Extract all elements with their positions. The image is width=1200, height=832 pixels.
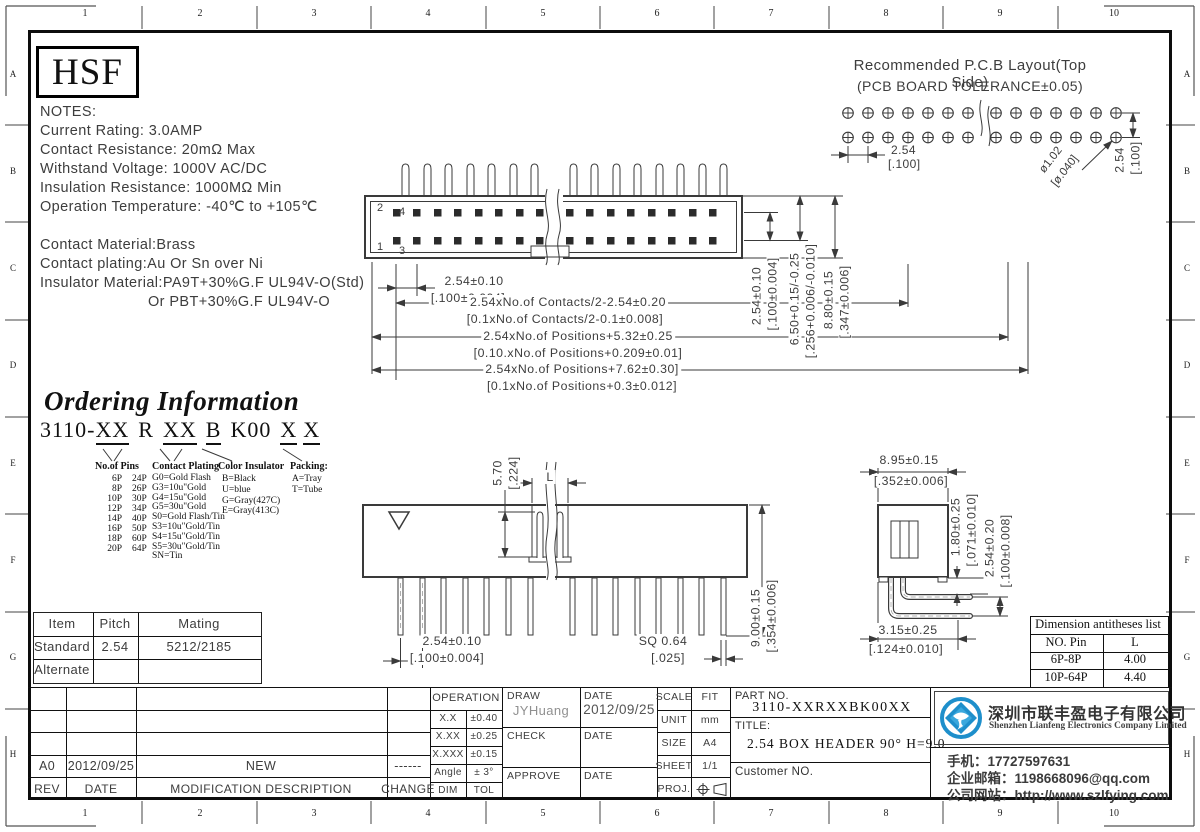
unit-label: UNIT [661, 714, 687, 726]
ruler-right-b: B [1180, 166, 1194, 176]
dim-positions2-inch: [0.1xNo.of Positions+0.3±0.012] [485, 379, 679, 393]
ruler-bottom-2: 2 [188, 808, 212, 819]
rev-header-rev: REV [34, 782, 60, 796]
pins-list: 6P24P 8P26P 10P30P 12P34P 14P40P 16P50P … [100, 474, 147, 554]
notes-title: NOTES: [40, 104, 96, 120]
ruler-left-f: F [6, 555, 20, 565]
dim-row-pitch: 2.54±0.10 [751, 265, 764, 327]
ruler-bottom-4: 4 [416, 808, 440, 819]
dim-table-header-pin: NO. Pin [1046, 635, 1087, 650]
company-name-en: Shenzhen Lianfeng Electronics Company Li… [989, 721, 1187, 731]
dim-body-650-inch: [.256+0.006/-0.010] [805, 242, 818, 361]
rev-change: ------ [394, 759, 421, 773]
dim-table-row-l: 4.00 [1124, 652, 1146, 667]
color-opt: G=Gray(427C) [222, 496, 280, 507]
drawing-title: 2.54 BOX HEADER 90° H=9.0 [747, 736, 946, 752]
pins-opt: 26P [132, 484, 147, 494]
ruler-top-1: 1 [73, 8, 97, 19]
ruler-bottom-7: 7 [759, 808, 783, 819]
pin-label-2: 2 [377, 202, 384, 214]
dim-front-pitch: 2.54±0.10 [420, 634, 483, 648]
dim-positions1-inch: [0.10.xNo.of Positions+0.209±0.01] [472, 346, 685, 360]
tol-label: X.XX [436, 731, 460, 742]
pins-opt: 6P [100, 474, 122, 484]
rev-date: 2012/09/25 [68, 759, 135, 773]
ruler-left-a: A [6, 69, 20, 79]
ruler-left-h: H [6, 749, 20, 759]
mating-pitch-value: 2.54 [102, 639, 129, 654]
title-label: TITLE: [735, 720, 770, 732]
plating-header: Contact Plating [152, 461, 219, 472]
sheet-label: SHEET [655, 760, 692, 772]
rev-description: NEW [246, 759, 276, 773]
dim-table-row-l: 4.40 [1124, 670, 1146, 685]
code-plating: XX [163, 417, 197, 445]
note-line: Contact Resistance: 20mΩ Max [40, 142, 255, 158]
pins-opt: 10P [100, 494, 122, 504]
pin-label-1: 1 [377, 241, 384, 253]
ruler-right-c: C [1180, 263, 1194, 273]
ruler-bottom-6: 6 [645, 808, 669, 819]
rev-id: A0 [39, 759, 55, 773]
ruler-bottom-3: 3 [302, 808, 326, 819]
rev-header-date: DATE [85, 782, 118, 796]
size-label: SIZE [662, 737, 687, 749]
dim-front-pitch-inch: [.100±0.004] [408, 651, 486, 665]
tol-label: Angle [434, 767, 462, 778]
plating-list: G0=Gold Flash G3=10u"Gold G4=15u"Gold G5… [152, 474, 225, 562]
dim-height-900-inch: [.354±0.006] [766, 577, 779, 654]
ruler-top-6: 6 [645, 8, 669, 19]
sheet-value: 1/1 [702, 760, 718, 772]
mating-header-mating: Mating [178, 616, 219, 631]
dim-tail-315-inch: [.124±0.010] [867, 642, 945, 656]
code-pack: K00 [230, 417, 271, 442]
tol-value: ±0.15 [471, 749, 498, 760]
dim-contacts: 2.54xNo.of Contacts/2-2.54±0.20 [468, 295, 668, 309]
code-x2: X [303, 417, 320, 445]
pins-opt: 30P [132, 494, 147, 504]
ruler-bottom-5: 5 [531, 808, 555, 819]
color-list: B=Black U=blue G=Gray(427C) E=Gray(413C) [222, 474, 280, 517]
dim-table-row-pin: 10P-64P [1044, 670, 1087, 685]
tol-value: ± 3° [474, 767, 493, 778]
packing-opt: A=Tray [292, 474, 322, 485]
drawing-sheet: 1 2 3 4 5 6 7 8 9 10 1 2 3 4 5 6 7 8 9 1… [0, 0, 1200, 832]
mating-value: 5212/2185 [166, 639, 231, 654]
code-color: B [206, 417, 222, 445]
color-header: Color Insulator [218, 461, 284, 472]
color-opt: U=blue [222, 485, 280, 496]
dim-table-header-l: L [1131, 635, 1139, 650]
ruler-bottom-1: 1 [73, 808, 97, 819]
part-number: 3110-XXRXXBK00XX [752, 700, 912, 716]
draw-name: JYHuang [513, 703, 569, 718]
ruler-bottom-8: 8 [874, 808, 898, 819]
mating-alternate: Alternate [34, 662, 90, 677]
dim-row-pitch-inch: [.100±0.004] [767, 255, 780, 332]
ruler-bottom-9: 9 [988, 808, 1012, 819]
ruler-left-b: B [6, 166, 20, 176]
rev-header-change: CHANGE [381, 782, 435, 796]
dim-l: L [544, 470, 555, 484]
ruler-right-d: D [1180, 360, 1194, 370]
dim-pitch: 2.54±0.10 [442, 274, 505, 288]
customer-no-label: Customer NO. [735, 766, 813, 778]
pin-label-4: 4 [399, 206, 406, 218]
dim-table-row-pin: 6P-8P [1051, 652, 1082, 667]
check-date-label: DATE [584, 730, 613, 742]
draw-date-value: 2012/09/25 [583, 702, 655, 717]
hsf-logo-text: HSF [52, 51, 123, 94]
material-line: Or PBT+30%G.F UL94V-O [148, 294, 330, 310]
mating-header-pitch: Pitch [100, 616, 131, 631]
dim-width-895-inch: [.352±0.006] [872, 474, 950, 488]
note-line: Insulation Resistance: 1000MΩ Min [40, 180, 282, 196]
size-value: A4 [703, 737, 717, 749]
note-line: Operation Temperature: -40℃ to +105℃ [40, 199, 318, 215]
tol-value: TOL [474, 785, 494, 796]
packing-opt: T=Tube [292, 485, 322, 496]
dim-sq: SQ 0.64 [637, 634, 690, 648]
hsf-logo: HSF [36, 46, 139, 98]
ruler-top-10: 10 [1102, 8, 1126, 19]
pins-opt: 12P [100, 504, 122, 514]
packing-list: A=Tray T=Tube [292, 474, 322, 496]
dim-254-inch: [.100±0.008] [1000, 512, 1013, 589]
scale-label: SCALE [656, 691, 692, 703]
dim-body-880: 8.80±0.15 [823, 269, 836, 331]
ruler-top-4: 4 [416, 8, 440, 19]
draw-date-label: DATE [584, 690, 613, 702]
dim-body-650: 6.50+0.15/-0.25 [789, 251, 802, 348]
ordering-title: Ordering Information [44, 386, 299, 417]
pins-opt: 20P [100, 544, 122, 554]
mating-header-item: Item [49, 616, 76, 631]
tol-value: ±0.40 [471, 713, 498, 724]
dim-contacts-inch: [0.1xNo.of Contacts/2-0.1±0.008] [465, 312, 665, 326]
rev-header-description: MODIFICATION DESCRIPTION [170, 782, 351, 796]
operation-title: OPERATION [432, 692, 500, 704]
color-opt: B=Black [222, 474, 280, 485]
code-x1: X [280, 417, 297, 445]
dim-body-880-inch: [.347±0.006] [839, 263, 852, 340]
packing-header: Packing: [290, 461, 328, 472]
ruler-left-e: E [6, 458, 20, 468]
ruler-right-e: E [1180, 458, 1194, 468]
ruler-left-d: D [6, 360, 20, 370]
ruler-top-3: 3 [302, 8, 326, 19]
dim-key-570: 5.70 [492, 458, 505, 488]
dim-positions2: 2.54xNo.of Positions+7.62±0.30] [483, 362, 681, 376]
company-website: 公司网站：http://www.szlfying.com [947, 784, 1169, 804]
scale-value: FIT [702, 691, 719, 703]
pin-label-3: 3 [399, 245, 406, 257]
pins-opt: 18P [100, 534, 122, 544]
color-opt: E=Gray(413C) [222, 506, 280, 517]
ruler-right-g: G [1180, 652, 1194, 662]
ruler-right-h: H [1180, 749, 1194, 759]
pins-header: No.of Pins [95, 461, 139, 472]
ruler-left-c: C [6, 263, 20, 273]
dim-width-895: 8.95±0.15 [877, 453, 940, 467]
dim-254: 2.54±0.20 [984, 517, 997, 579]
material-line: Contact plating:Au Or Sn over Ni [40, 256, 263, 272]
mating-standard: Standard [34, 639, 90, 654]
ruler-left-g: G [6, 652, 20, 662]
pins-opt: 14P [100, 514, 122, 524]
dim-table-title: Dimension antitheses list [1035, 617, 1161, 632]
ruler-top-7: 7 [759, 8, 783, 19]
material-line: Insulator Material:PA9T+30%G.F UL94V-O(S… [40, 275, 364, 291]
pcb-subtitle: (PCB BOARD TOLERANCE±0.05) [835, 78, 1105, 94]
unit-value: mm [701, 714, 719, 726]
ruler-right-f: F [1180, 555, 1194, 565]
ruler-top-9: 9 [988, 8, 1012, 19]
dim-tail-315: 3.15±0.25 [876, 623, 939, 637]
dim-sq-inch: [.025] [649, 651, 687, 665]
pins-opt: 40P [132, 514, 147, 524]
pins-opt: 34P [132, 504, 147, 514]
dim-height-900: 9.00±0.15 [750, 587, 763, 649]
pcb-row-dim-inch: [.100] [1130, 139, 1143, 176]
approve-label: APPROVE [507, 770, 561, 782]
pins-opt: 50P [132, 524, 147, 534]
pins-opt: 64P [132, 544, 147, 554]
tol-label: X.XXX [432, 749, 463, 760]
pins-opt: 8P [100, 484, 122, 494]
tol-value: ±0.25 [471, 731, 498, 742]
note-line: Current Rating: 3.0AMP [40, 123, 203, 139]
pcb-pitch-dim: 2.54 [891, 143, 916, 157]
pins-opt: 16P [100, 524, 122, 534]
projection-label: PROJ. [658, 783, 691, 795]
code-r: R [138, 417, 154, 442]
ruler-top-5: 5 [531, 8, 555, 19]
dim-180-inch: [.071±0.010] [966, 491, 979, 568]
pcb-row-dim: 2.54 [1114, 145, 1127, 175]
plating-opt: SN=Tin [152, 552, 225, 562]
pcb-p itch-dim-inch: [.100] [888, 157, 920, 171]
pins-opt: 24P [132, 474, 147, 484]
tol-label: X.X [439, 713, 456, 724]
note-line: Withstand Voltage: 1000V AC/DC [40, 161, 267, 177]
ruler-bottom-10: 10 [1102, 808, 1126, 819]
code-pins: XX [96, 417, 130, 445]
ruler-top-8: 8 [874, 8, 898, 19]
ruler-right-a: A [1180, 69, 1194, 79]
approve-date-label: DATE [584, 770, 613, 782]
dim-positions1: 2.54xNo.of Positions+5.32±0.25 [481, 329, 675, 343]
dim-key-570-inch: [.224] [508, 454, 521, 491]
check-label: CHECK [507, 730, 546, 742]
dim-180: 1.80±0.25 [950, 496, 963, 558]
code-prefix: 3110- [40, 417, 96, 442]
company-logo-icon [938, 695, 984, 741]
ordering-code: 3110-XXRXXBK00XX [40, 417, 320, 443]
pins-opt: 60P [132, 534, 147, 544]
tol-label: DIM [438, 785, 458, 796]
material-line: Contact Material:Brass [40, 237, 195, 253]
ruler-top-2: 2 [188, 8, 212, 19]
draw-label: DRAW [507, 690, 540, 702]
